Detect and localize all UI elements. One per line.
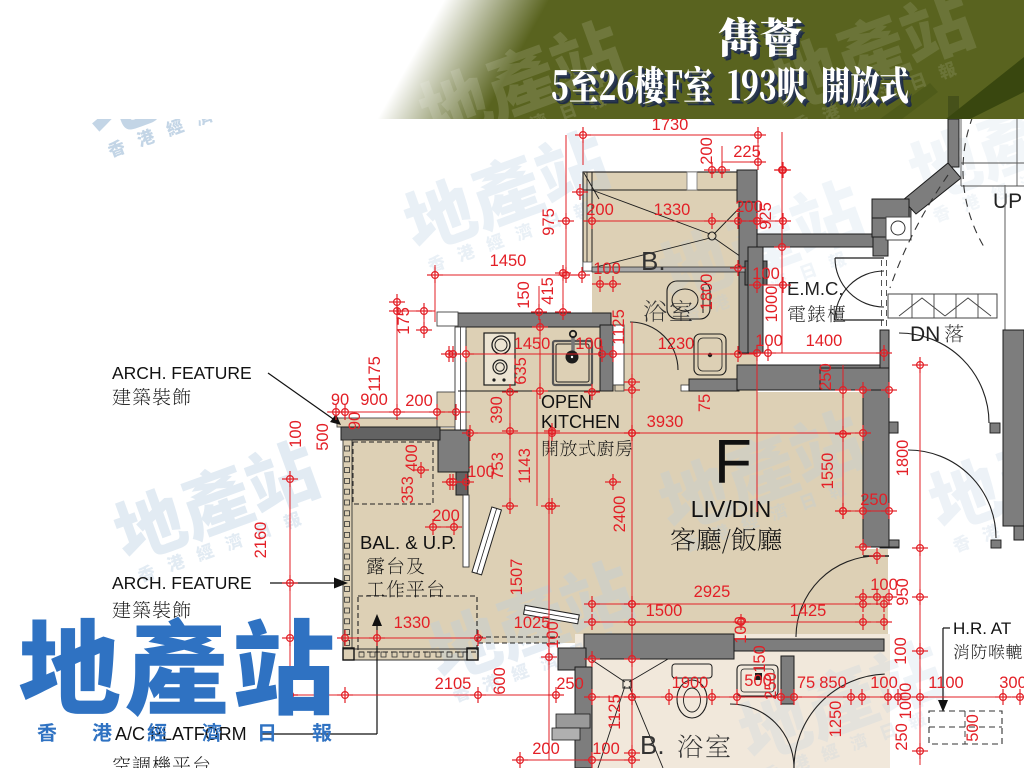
svg-text:100: 100 <box>752 265 780 283</box>
svg-text:75: 75 <box>696 394 714 412</box>
svg-text:415: 415 <box>539 277 557 305</box>
svg-text:250: 250 <box>893 723 911 751</box>
svg-text:2105: 2105 <box>435 675 472 693</box>
svg-text:2400: 2400 <box>611 496 629 533</box>
svg-text:1230: 1230 <box>658 335 695 353</box>
svg-text:1330: 1330 <box>654 201 691 219</box>
svg-text:250: 250 <box>556 675 584 693</box>
svg-text:B.: B. <box>640 730 665 760</box>
svg-text:3930: 3930 <box>647 413 684 431</box>
svg-text:200: 200 <box>532 740 560 758</box>
svg-text:90: 90 <box>331 391 349 409</box>
svg-text:75: 75 <box>797 674 815 692</box>
svg-text:100: 100 <box>575 335 603 353</box>
svg-text:1500: 1500 <box>646 602 683 620</box>
svg-text:E.M.C.: E.M.C. <box>787 278 844 299</box>
svg-text:1550: 1550 <box>819 453 837 490</box>
svg-text:H.R. AT: H.R. AT <box>953 619 1011 638</box>
svg-text:225: 225 <box>733 143 761 161</box>
svg-text:353: 353 <box>399 476 417 504</box>
svg-text:390: 390 <box>488 396 506 424</box>
svg-text:1125: 1125 <box>610 309 628 344</box>
svg-text:2925: 2925 <box>694 583 731 601</box>
svg-text:100: 100 <box>870 674 898 692</box>
svg-text:UP: UP <box>993 190 1022 213</box>
svg-text:500: 500 <box>964 714 982 742</box>
svg-text:900: 900 <box>360 391 388 409</box>
svg-text:250: 250 <box>860 491 888 509</box>
svg-text:100: 100 <box>287 420 305 448</box>
svg-text:925: 925 <box>757 202 775 230</box>
svg-text:100: 100 <box>732 616 750 644</box>
svg-text:1330: 1330 <box>394 614 431 632</box>
svg-text:90: 90 <box>346 412 364 430</box>
svg-text:1425: 1425 <box>790 602 827 620</box>
svg-text:200: 200 <box>432 507 460 525</box>
svg-text:500: 500 <box>314 423 332 451</box>
svg-text:BAL. & U.P.: BAL. & U.P. <box>360 532 456 553</box>
svg-text:1000: 1000 <box>897 683 915 720</box>
svg-text:150: 150 <box>515 281 533 309</box>
svg-text:A/C PLATFORM: A/C PLATFORM <box>115 724 247 744</box>
svg-text:1125: 1125 <box>606 694 624 729</box>
svg-text:B.: B. <box>641 246 666 276</box>
svg-text:250: 250 <box>762 672 780 700</box>
svg-text:1175: 1175 <box>366 356 384 391</box>
svg-text:1400: 1400 <box>806 332 843 350</box>
svg-text:ARCH. FEATURE: ARCH. FEATURE <box>112 573 252 593</box>
svg-text:150: 150 <box>751 645 769 673</box>
svg-text:1900: 1900 <box>672 674 709 692</box>
svg-text:100: 100 <box>592 740 620 758</box>
svg-text:1450: 1450 <box>514 335 551 353</box>
svg-text:975: 975 <box>540 208 558 236</box>
svg-text:KITCHEN: KITCHEN <box>541 412 620 432</box>
svg-text:2160: 2160 <box>252 522 270 559</box>
svg-text:ARCH. FEATURE: ARCH. FEATURE <box>112 363 252 383</box>
svg-text:1800: 1800 <box>698 274 716 311</box>
svg-text:1450: 1450 <box>490 252 527 270</box>
svg-text:635: 635 <box>512 357 530 385</box>
svg-text:OPEN: OPEN <box>541 392 592 412</box>
svg-text:200: 200 <box>698 137 716 165</box>
svg-text:1100: 1100 <box>928 674 963 692</box>
svg-text:200: 200 <box>405 392 433 410</box>
svg-text:1250: 1250 <box>827 701 845 738</box>
svg-text:1000: 1000 <box>763 286 781 323</box>
svg-text:1143: 1143 <box>516 448 534 483</box>
svg-text:200: 200 <box>586 201 614 219</box>
svg-text:1507: 1507 <box>508 559 526 596</box>
svg-text:100: 100 <box>755 332 783 350</box>
svg-text:250: 250 <box>817 363 835 391</box>
svg-text:600: 600 <box>491 667 509 695</box>
svg-text:100: 100 <box>593 260 621 278</box>
svg-text:950: 950 <box>894 578 912 606</box>
svg-text:1800: 1800 <box>894 440 912 477</box>
svg-text:100: 100 <box>892 637 910 665</box>
svg-text:300: 300 <box>999 674 1024 692</box>
svg-text:LIV/DIN: LIV/DIN <box>691 496 772 522</box>
svg-text:175: 175 <box>395 307 413 335</box>
svg-text:100: 100 <box>544 621 562 649</box>
svg-text:753: 753 <box>489 452 507 480</box>
svg-text:F: F <box>714 428 752 497</box>
svg-text:850: 850 <box>819 674 847 692</box>
